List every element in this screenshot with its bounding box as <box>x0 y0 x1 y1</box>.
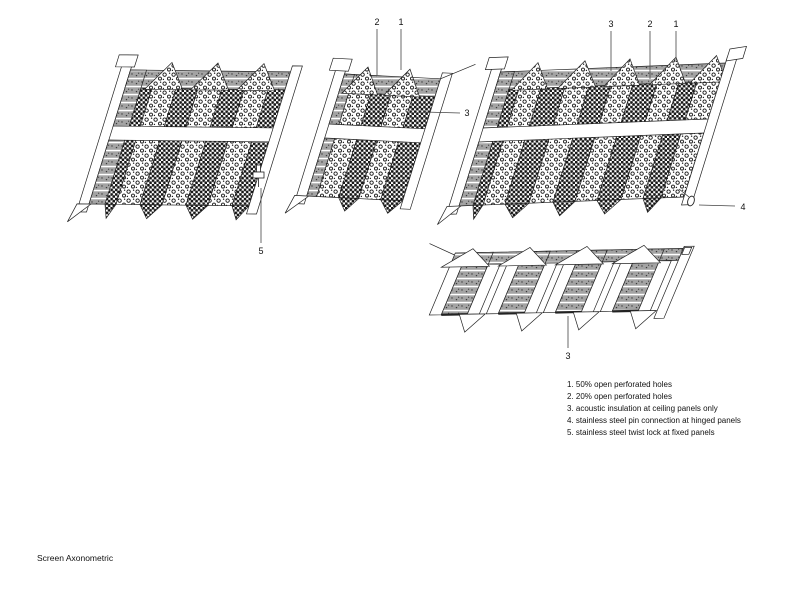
callout-4: 4 <box>699 202 746 212</box>
panel-face <box>473 205 483 219</box>
callout-3: 3 <box>608 19 613 71</box>
callout-2: 2 <box>374 17 379 75</box>
callout-3: 3 <box>565 316 570 361</box>
panel-face <box>329 58 352 71</box>
panel-face <box>553 201 575 215</box>
panel-face <box>140 205 162 219</box>
legend-item: 1. 50% open perforated holes <box>567 379 745 391</box>
callout-1: 1 <box>673 19 678 62</box>
panel-face <box>726 46 746 61</box>
callout-label: 3 <box>608 19 613 29</box>
screen-panel-right-screen <box>437 46 746 224</box>
callout-label: 1 <box>673 19 678 29</box>
callout-label: 3 <box>565 351 570 361</box>
panel-face <box>339 198 359 212</box>
panel-face <box>459 314 485 332</box>
callout-label: 4 <box>740 202 745 212</box>
panel-face <box>186 205 208 219</box>
panel-face <box>116 55 139 67</box>
drawing-title: Screen Axonometric <box>37 553 113 563</box>
panel-face <box>381 200 403 214</box>
screen-panel-left-screen <box>67 55 302 222</box>
panel-face <box>105 204 116 218</box>
panel-face <box>505 203 529 218</box>
panel-face <box>485 57 508 70</box>
callout-1: 1 <box>398 17 403 70</box>
screen-panel-middle-screen <box>285 58 475 213</box>
callout-label: 2 <box>647 19 652 29</box>
legend-item: 2. 20% open perforated holes <box>567 391 745 403</box>
panel-face <box>643 198 661 212</box>
legend-item: 5. stainless steel twist lock at fixed p… <box>567 427 745 439</box>
callout-label: 1 <box>398 17 403 27</box>
panel-face <box>67 204 91 222</box>
screen-panels-layer <box>67 46 746 332</box>
panel-face <box>232 206 249 220</box>
screen-panel-ceiling-screen <box>429 244 694 333</box>
panel-face <box>573 312 599 330</box>
axonometric-drawing: 213321453 <box>0 0 800 600</box>
legend-item: 4. stainless steel pin connection at hin… <box>567 415 745 427</box>
keynote-legend: 1. 50% open perforated holes2. 20% open … <box>567 379 745 439</box>
callout-label: 3 <box>464 108 469 118</box>
panel-face <box>437 206 461 225</box>
panel-face <box>597 200 621 215</box>
callout-label: 2 <box>374 17 379 27</box>
panel-face <box>516 313 542 331</box>
panel-face <box>285 195 309 213</box>
drawing-sheet: 213321453 1. 50% open perforated holes2.… <box>0 0 800 600</box>
panel-face <box>630 311 656 329</box>
legend-item: 3. acoustic insulation at ceiling panels… <box>567 403 745 415</box>
callout-label: 5 <box>258 246 263 256</box>
